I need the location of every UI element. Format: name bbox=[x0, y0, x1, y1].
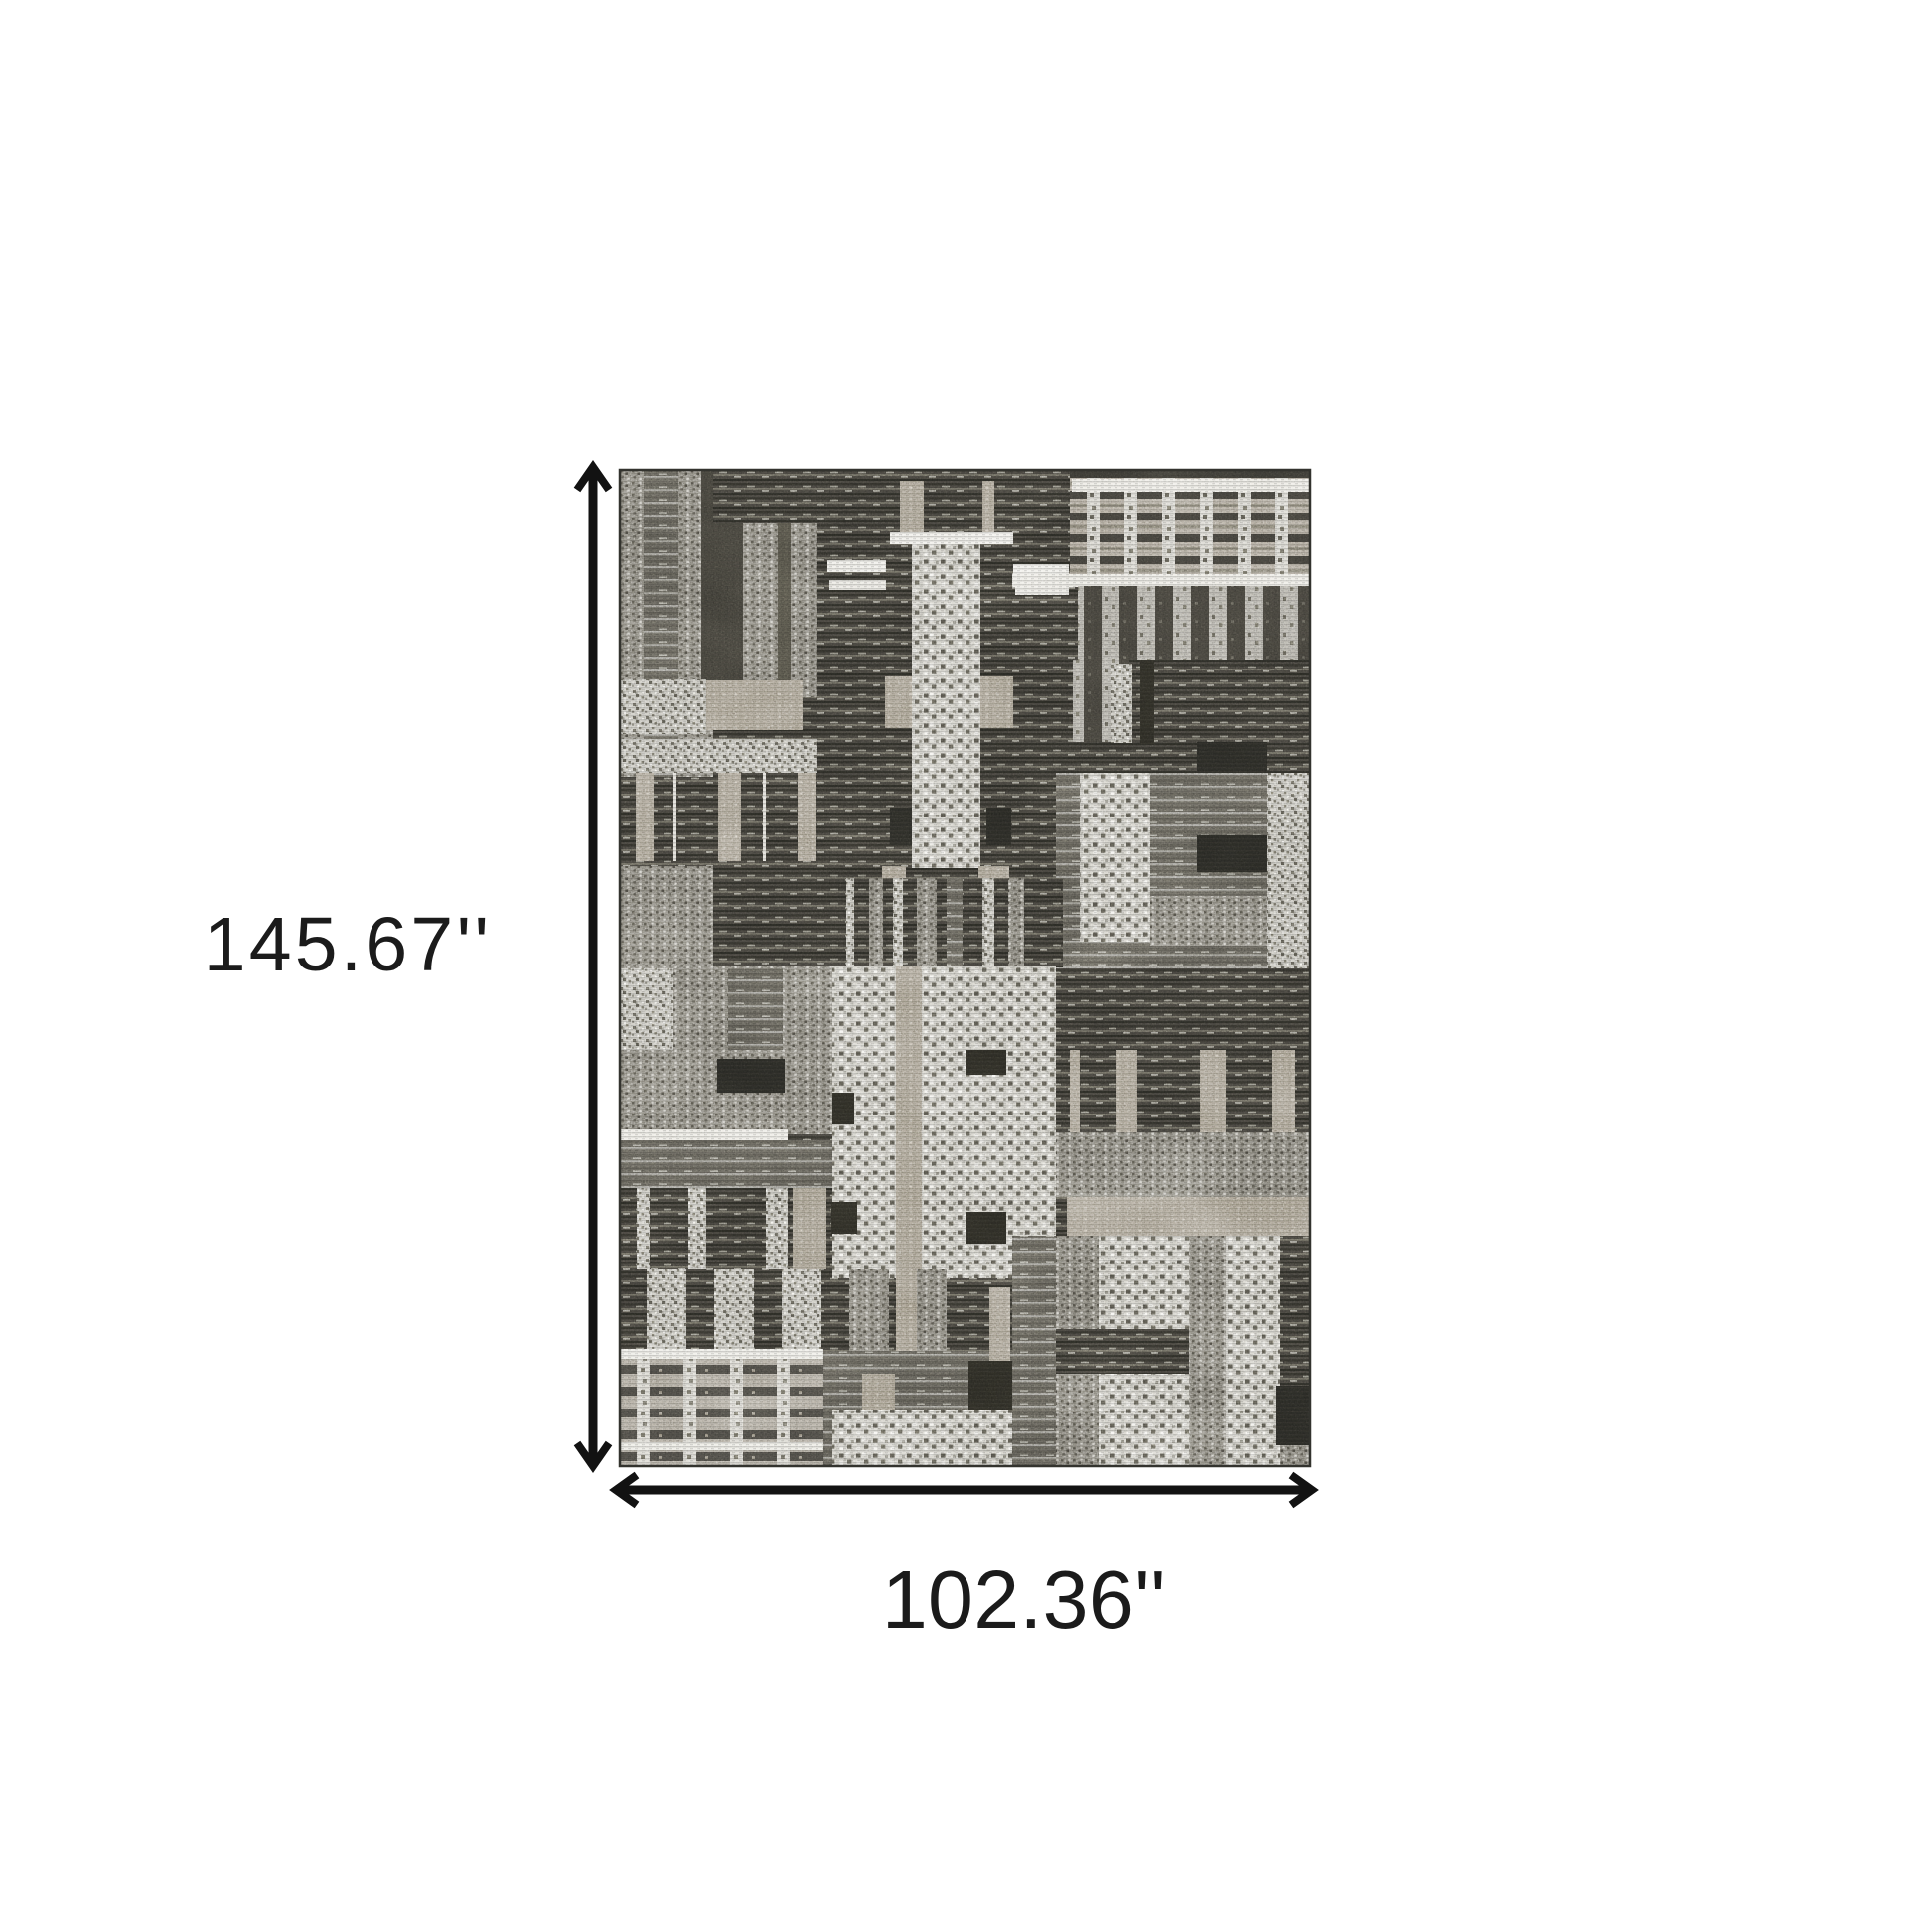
svg-text:145.67'': 145.67'' bbox=[204, 902, 493, 987]
svg-text:102.36'': 102.36'' bbox=[882, 1555, 1166, 1646]
